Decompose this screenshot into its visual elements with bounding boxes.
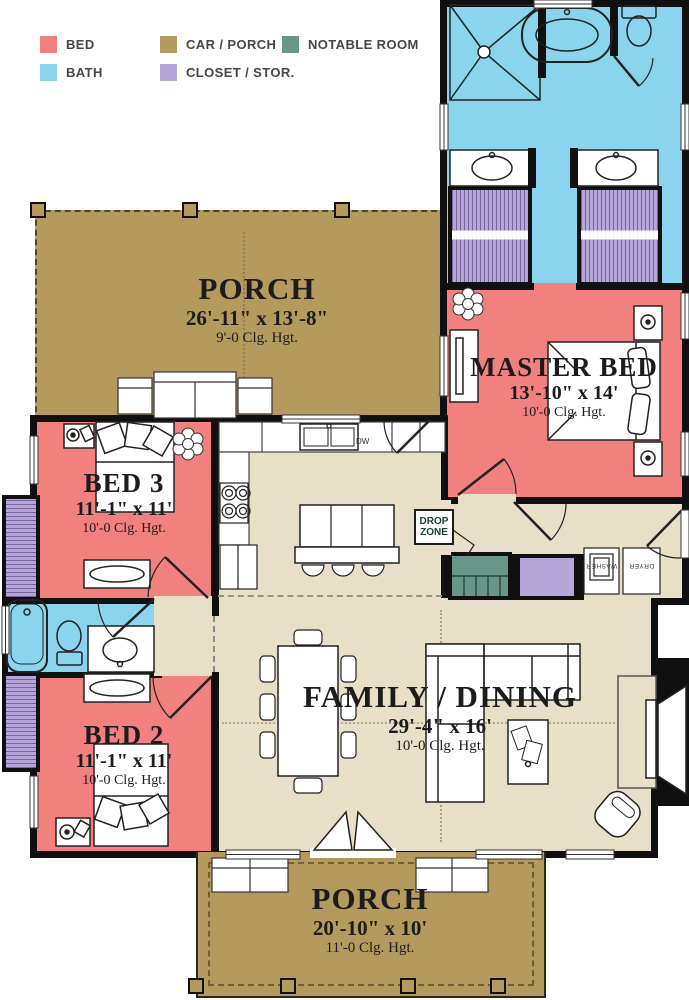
room-ceiling: 10'-0 Clg. Hgt. bbox=[36, 773, 212, 789]
porch-post bbox=[490, 978, 506, 994]
room-kitchen bbox=[212, 415, 448, 605]
room-dims: 26'-11" x 13'-8" bbox=[97, 307, 417, 331]
master-closet-right bbox=[577, 186, 662, 286]
master-closet-left bbox=[448, 186, 532, 286]
room-dims: 11'-1" x 11' bbox=[36, 750, 212, 772]
room-name: FAMILY / DINING bbox=[250, 680, 630, 715]
notable-color-swatch bbox=[282, 36, 299, 53]
porch-post bbox=[30, 202, 46, 218]
opening-hall bbox=[154, 596, 212, 676]
label-bed-2: BED 2 11'-1" x 11' 10'-0 Clg. Hgt. bbox=[36, 720, 212, 788]
porch-color-swatch bbox=[160, 36, 177, 53]
legend-item-bath: BATH bbox=[40, 64, 103, 81]
laundry-closet bbox=[516, 554, 578, 600]
drop-zone-text: DROP bbox=[420, 516, 449, 528]
kitchen-family-transition bbox=[218, 595, 442, 597]
room-dims: 11'-1" x 11' bbox=[36, 498, 212, 520]
opening-master-bath-passage bbox=[534, 283, 576, 292]
fireplace-surround bbox=[652, 658, 689, 806]
legend-item-car-porch: CAR / PORCH bbox=[160, 36, 276, 53]
dishwasher-label: DW bbox=[356, 437, 369, 446]
room-name: PORCH bbox=[215, 882, 525, 917]
room-dims: 29'-4" x 16' bbox=[250, 715, 630, 739]
legend-label: CLOSET / STOR. bbox=[186, 65, 295, 80]
label-porch-top: PORCH 26'-11" x 13'-8" 9'-0 Clg. Hgt. bbox=[97, 272, 417, 347]
drop-zone-callout: DROP ZONE bbox=[414, 509, 454, 545]
room-ceiling: 11'-0 Clg. Hgt. bbox=[215, 940, 525, 957]
washer-label: WASHER bbox=[584, 562, 619, 569]
room-name: PORCH bbox=[97, 272, 417, 307]
label-family-dining: FAMILY / DINING 29'-4" x 16' 10'-0 Clg. … bbox=[250, 680, 630, 755]
floor-plan: BED CAR / PORCH NOTABLE ROOM BATH CLOSET… bbox=[0, 0, 689, 1000]
opening-master-door bbox=[458, 494, 516, 507]
legend-label: BATH bbox=[66, 65, 103, 80]
legend-item-notable-room: NOTABLE ROOM bbox=[282, 36, 419, 53]
legend-item-bed: BED bbox=[40, 36, 95, 53]
legend-label: BED bbox=[66, 37, 95, 52]
drop-zone-bench bbox=[448, 552, 512, 600]
cased-opening-dash bbox=[213, 616, 215, 672]
room-ceiling: 9'-0 Clg. Hgt. bbox=[97, 330, 417, 347]
room-ceiling: 10'-0 Clg. Hgt. bbox=[250, 738, 630, 755]
label-porch-bottom: PORCH 20'-10" x 10' 11'-0 Clg. Hgt. bbox=[215, 882, 525, 957]
porch-post bbox=[182, 202, 198, 218]
legend-label: NOTABLE ROOM bbox=[308, 37, 419, 52]
wall-stub bbox=[576, 554, 584, 600]
room-dims: 20'-10" x 10' bbox=[215, 917, 525, 941]
room-ceiling: 10'-0 Clg. Hgt. bbox=[36, 521, 212, 537]
porch-post bbox=[188, 978, 204, 994]
bed-color-swatch bbox=[40, 36, 57, 53]
drop-zone-text: ZONE bbox=[420, 527, 448, 539]
bed3-closet bbox=[2, 495, 40, 601]
porch-post bbox=[400, 978, 416, 994]
label-master-bed: MASTER BED 13'-10" x 14' 10'-0 Clg. Hgt. bbox=[444, 352, 684, 420]
porch-post bbox=[334, 202, 350, 218]
closet-color-swatch bbox=[160, 64, 177, 81]
legend-item-closet: CLOSET / STOR. bbox=[160, 64, 295, 81]
legend-label: CAR / PORCH bbox=[186, 37, 276, 52]
label-bed-3: BED 3 11'-1" x 11' 10'-0 Clg. Hgt. bbox=[36, 468, 212, 536]
dryer-label: DRYER bbox=[623, 562, 660, 569]
porch-post bbox=[280, 978, 296, 994]
legend: BED CAR / PORCH NOTABLE ROOM BATH CLOSET… bbox=[40, 36, 460, 92]
room-ceiling: 10'-0 Clg. Hgt. bbox=[444, 405, 684, 421]
room-dims: 13'-10" x 14' bbox=[444, 382, 684, 404]
room-hall-bath bbox=[2, 598, 162, 678]
bed2-closet bbox=[2, 672, 40, 772]
room-name: BED 3 bbox=[36, 468, 212, 498]
room-name: MASTER BED bbox=[444, 352, 684, 382]
wall-stub bbox=[508, 554, 516, 600]
opening-family-hall bbox=[210, 616, 220, 672]
room-name: BED 2 bbox=[36, 720, 212, 750]
bath-color-swatch bbox=[40, 64, 57, 81]
